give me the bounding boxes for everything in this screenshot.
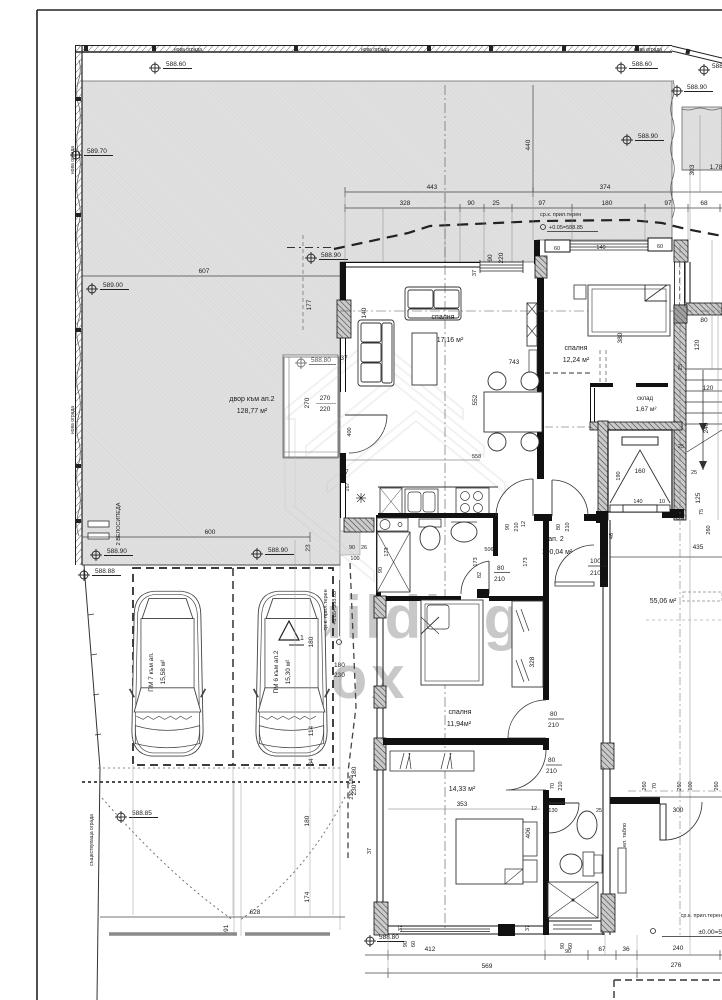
svg-text:380: 380 bbox=[617, 332, 624, 343]
svg-text:607: 607 bbox=[199, 268, 210, 275]
svg-text:склад: склад bbox=[637, 396, 654, 402]
svg-text:180: 180 bbox=[602, 200, 613, 207]
svg-text:328: 328 bbox=[400, 200, 411, 207]
svg-text:11,94м²: 11,94м² bbox=[447, 721, 472, 728]
svg-text:100: 100 bbox=[590, 558, 601, 565]
svg-text:588.90: 588.90 bbox=[321, 252, 341, 259]
svg-text:37: 37 bbox=[341, 469, 349, 476]
svg-text:60: 60 bbox=[554, 246, 560, 252]
svg-text:90: 90 bbox=[487, 254, 494, 262]
svg-text:12: 12 bbox=[603, 581, 609, 587]
svg-text:628: 628 bbox=[250, 909, 261, 916]
svg-text:75: 75 bbox=[699, 509, 705, 515]
svg-text:25: 25 bbox=[492, 200, 500, 207]
svg-text:210: 210 bbox=[590, 570, 601, 577]
svg-text:ПМ 6 към ап.2: ПМ 6 към ап.2 bbox=[273, 650, 280, 693]
svg-text:190: 190 bbox=[616, 471, 622, 480]
svg-text:173: 173 bbox=[523, 557, 529, 566]
svg-text:ел. табло: ел. табло bbox=[622, 823, 628, 847]
svg-text:588.80: 588.80 bbox=[311, 357, 331, 364]
svg-text:37: 37 bbox=[472, 270, 478, 276]
svg-text:128,77 м²: 128,77 м² bbox=[237, 408, 268, 415]
svg-text:60: 60 bbox=[411, 941, 417, 947]
svg-text:173: 173 bbox=[473, 557, 479, 566]
svg-text:25: 25 bbox=[678, 444, 684, 450]
svg-text:90: 90 bbox=[505, 524, 511, 530]
svg-text:588.85: 588.85 bbox=[132, 810, 152, 817]
svg-text:80: 80 bbox=[556, 524, 562, 530]
svg-text:12,24 м²: 12,24 м² bbox=[563, 357, 590, 364]
svg-text:230: 230 bbox=[349, 790, 355, 799]
svg-text:37: 37 bbox=[398, 925, 404, 931]
svg-text:68: 68 bbox=[700, 200, 708, 207]
svg-text:97: 97 bbox=[538, 200, 546, 207]
svg-text:ср.к. прил.терен: ср.к. прил.терен bbox=[540, 212, 581, 218]
svg-text:180: 180 bbox=[308, 636, 315, 647]
svg-text:210: 210 bbox=[546, 768, 557, 775]
svg-text:55,06 м²: 55,06 м² bbox=[650, 598, 677, 605]
svg-text:569: 569 bbox=[482, 963, 493, 970]
svg-text:276: 276 bbox=[671, 962, 682, 969]
svg-text:210: 210 bbox=[548, 722, 559, 729]
svg-text:600: 600 bbox=[205, 529, 216, 536]
svg-text:спалня: спалня bbox=[449, 709, 472, 716]
svg-text:588.60: 588.60 bbox=[166, 61, 186, 68]
svg-text:506: 506 bbox=[484, 547, 493, 553]
svg-text:60: 60 bbox=[657, 244, 663, 250]
svg-text:435: 435 bbox=[693, 544, 704, 551]
svg-text:300: 300 bbox=[673, 807, 684, 814]
svg-text:14,33 м²: 14,33 м² bbox=[449, 786, 476, 793]
svg-text:588.90: 588.90 bbox=[107, 548, 127, 555]
svg-text:240: 240 bbox=[703, 422, 710, 433]
svg-text:114: 114 bbox=[308, 725, 315, 736]
svg-text:80: 80 bbox=[700, 317, 708, 324]
svg-text:140: 140 bbox=[596, 245, 605, 251]
svg-text:552: 552 bbox=[472, 394, 479, 405]
svg-text:двор към ап.2: двор към ап.2 bbox=[229, 396, 274, 403]
svg-text:210: 210 bbox=[565, 522, 571, 531]
svg-text:589.00: 589.00 bbox=[103, 282, 123, 289]
svg-text:353: 353 bbox=[457, 801, 468, 808]
svg-text:588.60: 588.60 bbox=[632, 61, 652, 68]
svg-text:260: 260 bbox=[706, 525, 712, 534]
svg-text:588: 588 bbox=[712, 63, 722, 70]
svg-text:нова ограда: нова ограда bbox=[70, 406, 76, 434]
svg-text:нова ограда: нова ограда bbox=[361, 47, 389, 53]
svg-text:588.90: 588.90 bbox=[268, 547, 288, 554]
svg-text:+0.05=588.85: +0.05=588.85 bbox=[332, 591, 338, 625]
svg-text:220: 220 bbox=[320, 406, 331, 413]
svg-text:46: 46 bbox=[609, 533, 615, 539]
svg-text:210: 210 bbox=[494, 576, 505, 583]
svg-text:25: 25 bbox=[596, 808, 602, 814]
svg-text:25: 25 bbox=[691, 470, 697, 476]
svg-text:102: 102 bbox=[602, 558, 608, 567]
svg-text:90: 90 bbox=[349, 545, 355, 551]
svg-text:25: 25 bbox=[678, 516, 684, 522]
svg-text:140: 140 bbox=[361, 307, 368, 318]
svg-text:спалня: спалня bbox=[432, 314, 455, 321]
svg-text:80: 80 bbox=[550, 711, 558, 718]
svg-text:160: 160 bbox=[635, 468, 646, 475]
svg-text:374: 374 bbox=[600, 184, 611, 191]
svg-text:37: 37 bbox=[367, 848, 373, 854]
svg-text:80: 80 bbox=[548, 757, 556, 764]
svg-text:90: 90 bbox=[378, 567, 384, 573]
svg-text:1: 1 bbox=[300, 635, 304, 642]
svg-text:17,16 м²: 17,16 м² bbox=[437, 337, 464, 344]
svg-text:+0.05=588.85: +0.05=588.85 bbox=[549, 225, 583, 231]
svg-text:70: 70 bbox=[550, 783, 556, 789]
svg-text:съществуваща ограда: съществуваща ограда bbox=[89, 814, 95, 866]
svg-text:588.90: 588.90 bbox=[638, 133, 658, 140]
svg-text:нова ограда: нова ограда bbox=[70, 146, 76, 174]
svg-text:440: 440 bbox=[525, 139, 532, 150]
svg-text:ср.к. прил.терен: ср.к. прил.терен bbox=[323, 589, 329, 630]
svg-text:120: 120 bbox=[694, 339, 701, 350]
svg-text:90: 90 bbox=[467, 200, 475, 207]
svg-text:23: 23 bbox=[305, 544, 312, 552]
svg-text:328: 328 bbox=[529, 656, 536, 667]
svg-text:588.88: 588.88 bbox=[95, 568, 115, 575]
svg-text:260: 260 bbox=[677, 781, 683, 790]
svg-text:90: 90 bbox=[403, 941, 409, 947]
svg-text:нова ограда: нова ограда bbox=[174, 47, 202, 53]
svg-text:12: 12 bbox=[531, 806, 537, 812]
svg-text:443: 443 bbox=[427, 184, 438, 191]
svg-text:90: 90 bbox=[565, 949, 571, 955]
svg-text:180: 180 bbox=[334, 662, 345, 669]
svg-text:743: 743 bbox=[509, 359, 520, 366]
svg-text:167: 167 bbox=[345, 482, 351, 491]
svg-text:120: 120 bbox=[703, 385, 714, 392]
svg-text:588.90: 588.90 bbox=[687, 84, 707, 91]
svg-text:400: 400 bbox=[347, 427, 353, 436]
svg-text:210: 210 bbox=[558, 781, 564, 790]
svg-text:ПМ 7 към ап.: ПМ 7 към ап. bbox=[148, 652, 155, 692]
svg-text:37: 37 bbox=[340, 355, 348, 362]
svg-text:140: 140 bbox=[633, 499, 642, 505]
svg-text:64: 64 bbox=[308, 758, 315, 766]
svg-text:406: 406 bbox=[525, 827, 532, 838]
svg-text:100: 100 bbox=[688, 781, 694, 790]
svg-text:125: 125 bbox=[695, 492, 702, 503]
svg-text:ап. 2: ап. 2 bbox=[548, 536, 564, 543]
svg-text:2 ВЕЛОСИПЕДА: 2 ВЕЛОСИПЕДА bbox=[116, 502, 122, 545]
svg-text:260: 260 bbox=[642, 781, 648, 790]
svg-text:70: 70 bbox=[652, 783, 658, 789]
svg-text:ср.к. прил.терен: ср.к. прил.терен bbox=[681, 913, 722, 919]
svg-text:1,67 м²: 1,67 м² bbox=[635, 406, 657, 413]
svg-text:100: 100 bbox=[350, 556, 359, 562]
svg-text:270: 270 bbox=[304, 397, 311, 408]
svg-text:180: 180 bbox=[349, 775, 355, 784]
svg-text:37: 37 bbox=[525, 925, 531, 931]
svg-text:173: 173 bbox=[384, 547, 390, 556]
svg-text:210: 210 bbox=[514, 522, 520, 531]
svg-text:177: 177 bbox=[306, 299, 313, 310]
svg-text:230: 230 bbox=[334, 672, 345, 679]
svg-text:26: 26 bbox=[361, 545, 367, 551]
svg-text:260: 260 bbox=[714, 781, 720, 790]
svg-text:спалня: спалня bbox=[565, 345, 588, 352]
svg-text:220: 220 bbox=[498, 252, 505, 263]
svg-text:97: 97 bbox=[664, 200, 672, 207]
svg-text:25: 25 bbox=[678, 364, 684, 370]
svg-text:558: 558 bbox=[472, 454, 481, 460]
svg-text:36: 36 bbox=[622, 946, 630, 953]
svg-text:80: 80 bbox=[497, 565, 505, 572]
svg-text:130: 130 bbox=[548, 808, 557, 814]
svg-text:15,58 м²: 15,58 м² bbox=[160, 659, 167, 685]
svg-text:12: 12 bbox=[521, 521, 527, 527]
svg-text:82: 82 bbox=[477, 572, 483, 578]
svg-text:270: 270 bbox=[320, 395, 331, 402]
svg-text:10: 10 bbox=[659, 499, 665, 505]
svg-text:240: 240 bbox=[673, 945, 684, 952]
svg-text:589.70: 589.70 bbox=[87, 148, 107, 155]
svg-text:±0.00=5: ±0.00=5 bbox=[698, 929, 722, 936]
svg-text:15,30 м²: 15,30 м² bbox=[285, 659, 292, 685]
svg-text:412: 412 bbox=[425, 946, 436, 953]
